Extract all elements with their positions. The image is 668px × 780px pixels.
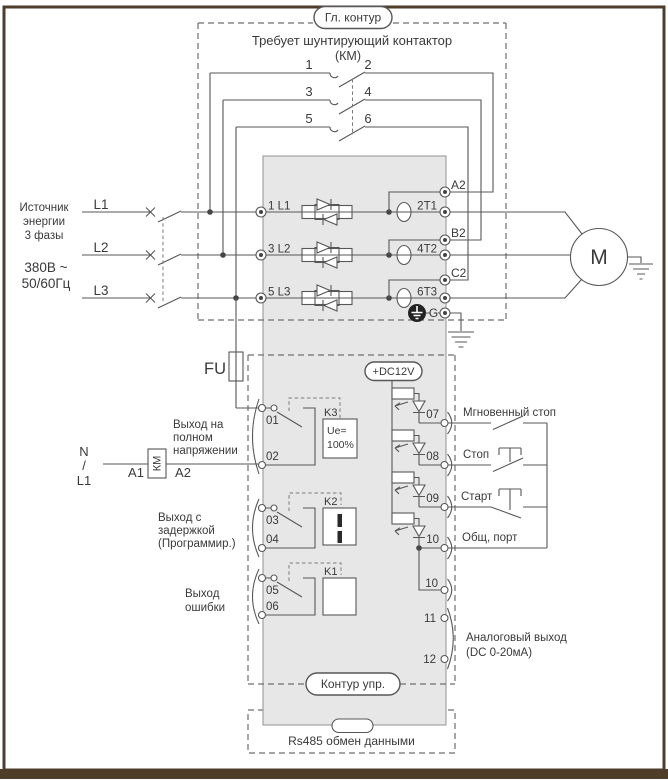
terminal-01 bbox=[259, 405, 266, 412]
km-neutral-label: N bbox=[79, 444, 88, 459]
control-circuit-pill-label: Контур упр. bbox=[321, 677, 385, 691]
output1-label-line3: напряжении bbox=[173, 445, 238, 457]
km-slash-label: / bbox=[82, 458, 86, 473]
rs485-label: Rs485 обмен данными bbox=[288, 734, 415, 748]
terminal-08 bbox=[441, 462, 448, 469]
relay-k3-note1: Ue= bbox=[327, 425, 347, 437]
contact-number-1: 1 bbox=[305, 57, 312, 72]
terminal-06-label: 06 bbox=[266, 601, 279, 613]
main-circuit-note-km: (КМ) bbox=[335, 49, 361, 63]
terminal-10b bbox=[441, 587, 448, 594]
bypass-terminal-label-c2: C2 bbox=[451, 266, 467, 280]
phase-label-l1: L1 bbox=[93, 197, 108, 212]
contact-number-5: 5 bbox=[305, 111, 312, 126]
bypass-terminal-label-a2: A2 bbox=[451, 178, 466, 192]
terminal-6t3 bbox=[443, 296, 447, 300]
output1-label-line2: полном bbox=[173, 432, 213, 444]
source-label-line2: энергии bbox=[23, 216, 65, 228]
output-terminal-label-1: 2T1 bbox=[417, 201, 437, 213]
source-label-line1: Источник bbox=[19, 202, 69, 214]
relay-k1-label: K1 bbox=[324, 566, 337, 578]
input-07-label: Мгновенный стоп bbox=[463, 407, 556, 419]
terminal-c2 bbox=[443, 278, 447, 282]
terminal-05-label: 05 bbox=[266, 585, 279, 597]
terminal-10-label: 10 bbox=[426, 534, 439, 546]
motor-label: M bbox=[590, 246, 608, 269]
terminal-04 bbox=[259, 545, 266, 552]
terminal-4t2 bbox=[443, 253, 447, 257]
relay-k2-bar1 bbox=[338, 514, 343, 527]
terminal-07 bbox=[441, 420, 448, 427]
analog-output-label1: Аналоговый выход bbox=[466, 632, 567, 644]
source-voltage: 380В ~ bbox=[24, 260, 67, 275]
phase-label-l3: L3 bbox=[93, 283, 108, 298]
input-resistor-10 bbox=[392, 513, 414, 524]
wiring-diagram: Гл. контур Требует шунтирующий контактор… bbox=[0, 0, 668, 780]
output3-label-line1: Выход bbox=[185, 588, 220, 600]
bypass-terminal-label-b2: B2 bbox=[451, 226, 466, 240]
terminal-g bbox=[443, 311, 447, 315]
relay-k3-label: K3 bbox=[324, 407, 337, 419]
phase-label-l2: L2 bbox=[93, 240, 108, 255]
terminal-05 bbox=[259, 575, 266, 582]
terminal-5l3 bbox=[259, 296, 263, 300]
terminal-06 bbox=[259, 612, 266, 619]
source-frequency: 50/60Гц bbox=[22, 276, 71, 291]
terminal-03 bbox=[259, 505, 266, 512]
terminal-1l1 bbox=[259, 210, 263, 214]
input-09-label: Старт bbox=[461, 491, 493, 503]
terminal-a2 bbox=[443, 190, 447, 194]
terminal-11 bbox=[441, 615, 448, 622]
input-08-label: Стоп bbox=[463, 449, 489, 461]
output2-label-line1: Выход с bbox=[158, 512, 202, 524]
relay-k3-note2: 100% bbox=[327, 439, 354, 451]
input-resistor-09 bbox=[392, 472, 414, 483]
source-label-line3: 3 фазы bbox=[25, 230, 64, 242]
input-terminal-label-1: 1 L1 bbox=[268, 201, 290, 213]
terminal-02-label: 02 bbox=[266, 451, 279, 463]
output2-label-line3: (Программир.) bbox=[158, 538, 236, 550]
frame-bottom-band bbox=[0, 769, 668, 779]
terminal-12-label: 12 bbox=[423, 654, 436, 666]
terminal-10 bbox=[441, 545, 448, 552]
km-a2-label: A2 bbox=[175, 465, 191, 480]
output3-label-line2: ошибки bbox=[185, 602, 225, 614]
output2-label-line2: задержкой bbox=[158, 525, 215, 537]
contact-number-3: 3 bbox=[305, 84, 312, 99]
dc12v-label: +DC12V bbox=[373, 366, 416, 378]
contact-number-4: 4 bbox=[364, 84, 371, 99]
terminal-09 bbox=[441, 504, 448, 511]
terminal-2t1 bbox=[443, 210, 447, 214]
terminal-3l2 bbox=[259, 253, 263, 257]
terminal-11-label: 11 bbox=[424, 613, 436, 625]
output-terminal-label-3: 6T3 bbox=[417, 287, 437, 299]
km-a1-label: A1 bbox=[128, 465, 144, 480]
contact-number-2: 2 bbox=[364, 57, 371, 72]
terminal-b2 bbox=[443, 238, 447, 242]
km-coil-label: КМ bbox=[152, 456, 164, 472]
terminal-07-label: 07 bbox=[426, 409, 439, 421]
output-terminal-label-2: 4T2 bbox=[417, 244, 437, 256]
terminal-12 bbox=[441, 656, 448, 663]
terminal-01-label: 01 bbox=[266, 415, 279, 427]
input-10-label: Общ, порт bbox=[462, 532, 518, 544]
relay-k2-label: K2 bbox=[324, 496, 337, 508]
terminal-08-label: 08 bbox=[426, 451, 439, 463]
terminal-09-label: 09 bbox=[426, 493, 439, 505]
analog-output-label2: (DC 0-20мА) bbox=[466, 647, 532, 659]
rs485-connector-pill bbox=[332, 719, 373, 733]
input-resistor-07 bbox=[392, 388, 414, 399]
relay-k1-box bbox=[323, 578, 356, 615]
output1-label-line1: Выход на bbox=[173, 419, 224, 431]
contact-number-6: 6 bbox=[364, 111, 371, 126]
input-terminal-label-3: 5 L3 bbox=[268, 287, 290, 299]
main-circuit-pill-label: Гл. контур bbox=[325, 11, 382, 25]
terminal-10b-label: 10 bbox=[425, 578, 438, 590]
main-circuit-note: Требует шунтирующий контактор bbox=[252, 33, 452, 48]
terminal-04-label: 04 bbox=[266, 534, 279, 546]
fuse-label: FU bbox=[204, 360, 226, 378]
km-line-label: L1 bbox=[77, 473, 91, 488]
terminal-02 bbox=[259, 462, 266, 469]
ground-terminal-label: G bbox=[429, 306, 438, 320]
input-resistor-08 bbox=[392, 430, 414, 441]
input-terminal-label-2: 3 L2 bbox=[268, 244, 290, 256]
terminal-03-label: 03 bbox=[266, 515, 279, 527]
relay-k2-bar2 bbox=[338, 531, 343, 543]
